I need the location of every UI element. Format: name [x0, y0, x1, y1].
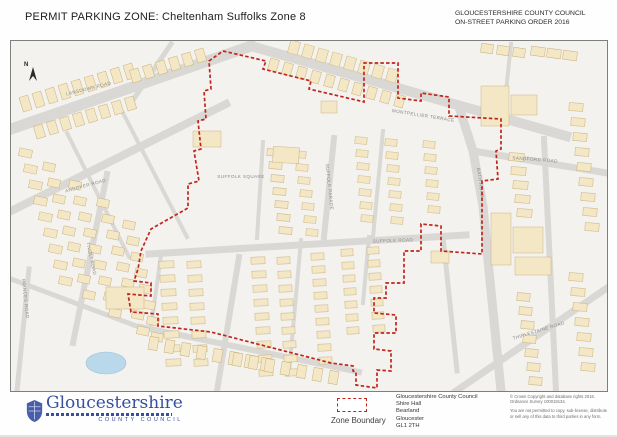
building	[189, 289, 203, 296]
building	[282, 327, 295, 334]
building	[511, 166, 527, 175]
building	[517, 293, 531, 302]
building	[273, 188, 286, 196]
page: PERMIT PARKING ZONE: Cheltenham Suffolks…	[0, 0, 617, 437]
building	[296, 364, 307, 378]
building	[358, 176, 370, 184]
building	[546, 48, 561, 59]
building	[519, 307, 533, 316]
pond	[86, 352, 126, 374]
building	[386, 152, 398, 160]
building	[296, 164, 308, 172]
building	[425, 167, 437, 175]
order-title-line2: ON-STREET PARKING ORDER 2016	[455, 19, 605, 28]
building	[577, 333, 592, 342]
building	[513, 227, 543, 253]
building	[190, 303, 204, 310]
building	[312, 266, 325, 273]
building	[321, 101, 337, 113]
building	[277, 257, 290, 264]
council-address: Gloucestershire County Council Shire Hal…	[396, 394, 478, 430]
building	[163, 317, 178, 325]
building	[515, 194, 531, 203]
building	[277, 214, 290, 222]
building	[573, 133, 588, 142]
building	[573, 303, 588, 312]
building	[256, 327, 270, 334]
building	[317, 331, 330, 338]
copyright-block: © Crown Copyright and database rights 20…	[510, 394, 610, 423]
copyright-text: © Crown Copyright and database rights 20…	[510, 394, 610, 404]
building	[159, 261, 174, 269]
building	[166, 359, 181, 367]
building	[391, 217, 403, 225]
building	[356, 150, 368, 158]
building	[341, 249, 353, 256]
building	[577, 163, 592, 172]
building	[361, 215, 373, 223]
building	[106, 287, 144, 309]
council-logo-name: Gloucestershire	[46, 395, 183, 412]
building	[427, 193, 439, 201]
building	[313, 279, 326, 286]
building	[480, 43, 493, 54]
building	[316, 318, 329, 325]
building	[345, 301, 357, 308]
building	[387, 165, 399, 173]
legend: Zone Boundary	[337, 398, 386, 425]
building	[423, 141, 435, 149]
building	[162, 303, 177, 311]
building	[284, 355, 297, 362]
building	[511, 95, 537, 115]
building	[315, 305, 328, 312]
building	[300, 190, 312, 198]
building	[491, 213, 511, 265]
building	[160, 275, 175, 283]
building	[517, 208, 533, 217]
building	[343, 275, 355, 282]
address-line: Gloucestershire County Council	[396, 394, 478, 401]
building	[275, 201, 288, 209]
building	[581, 193, 596, 202]
building	[579, 348, 594, 357]
building	[371, 299, 383, 306]
building	[428, 206, 440, 214]
building	[279, 285, 292, 292]
council-logo-text: Gloucestershire COUNTY COUNCIL	[46, 395, 183, 423]
council-logo-subtitle: COUNTY COUNCIL	[46, 417, 183, 423]
building	[251, 257, 265, 264]
building	[342, 262, 354, 269]
building	[281, 313, 294, 320]
building	[328, 370, 339, 384]
street-label: SUFFOLK SQUARE	[217, 174, 264, 179]
building	[530, 46, 545, 57]
building	[248, 355, 259, 369]
building	[585, 223, 600, 232]
building	[370, 286, 382, 293]
address-line: GL1 2TH	[396, 423, 478, 430]
building	[579, 178, 594, 187]
building	[164, 339, 175, 353]
building	[347, 327, 359, 334]
council-crest-icon	[26, 398, 43, 424]
building	[529, 377, 543, 386]
address-line: Gloucester	[396, 416, 478, 423]
building	[431, 251, 449, 263]
building	[312, 367, 323, 381]
building	[346, 314, 358, 321]
building	[368, 260, 380, 267]
building	[569, 273, 584, 282]
building	[525, 349, 539, 358]
building	[581, 363, 596, 372]
building	[575, 318, 590, 327]
building	[191, 317, 205, 324]
building	[359, 189, 371, 197]
building	[355, 137, 367, 145]
building	[569, 103, 584, 112]
building	[318, 344, 331, 351]
building	[148, 336, 159, 350]
building	[188, 275, 202, 282]
council-logo: Gloucestershire COUNTY COUNCIL	[26, 395, 183, 424]
building	[164, 331, 179, 339]
building	[311, 253, 324, 260]
building	[527, 363, 541, 372]
building	[280, 299, 293, 306]
building	[424, 154, 436, 162]
building	[212, 348, 223, 362]
page-title: PERMIT PARKING ZONE: Cheltenham Suffolks…	[25, 11, 306, 23]
building	[161, 289, 176, 297]
building	[385, 139, 397, 147]
building	[571, 288, 586, 297]
building	[283, 341, 296, 348]
building	[304, 216, 316, 224]
building	[314, 292, 327, 299]
building	[562, 50, 577, 61]
building	[515, 257, 551, 275]
building	[273, 146, 300, 163]
building	[298, 177, 310, 185]
order-title-line1: GLOUCESTERSHIRE COUNTY COUNCIL	[455, 10, 605, 19]
building	[232, 352, 243, 366]
logo-dashes-decoration	[46, 413, 172, 416]
building	[512, 47, 525, 58]
building	[302, 203, 314, 211]
building	[521, 321, 535, 330]
building	[254, 299, 268, 306]
building	[344, 288, 356, 295]
building	[252, 271, 266, 278]
address-line: Shire Hall	[396, 401, 478, 408]
building	[271, 175, 284, 183]
address-line: Bearland	[396, 408, 478, 415]
building	[278, 271, 291, 278]
building	[180, 342, 191, 356]
building	[187, 261, 201, 268]
building	[367, 247, 379, 254]
zone-boundary-label: Zone Boundary	[331, 416, 386, 425]
building	[481, 86, 509, 126]
building	[194, 359, 208, 366]
building	[255, 313, 269, 320]
building	[357, 163, 369, 171]
building	[306, 229, 318, 237]
building	[575, 148, 590, 157]
building	[426, 180, 438, 188]
building	[253, 285, 267, 292]
building	[571, 118, 586, 127]
disclaimer-text: You are not permitted to copy, sub-licen…	[510, 408, 610, 418]
building	[369, 273, 381, 280]
building	[360, 202, 372, 210]
building	[496, 45, 509, 56]
zone-boundary-swatch	[337, 398, 367, 412]
building	[583, 208, 598, 217]
building	[388, 178, 400, 186]
building	[390, 204, 402, 212]
building	[513, 180, 529, 189]
building	[193, 131, 221, 147]
building	[279, 227, 292, 235]
order-title: GLOUCESTERSHIRE COUNTY COUNCIL ON-STREET…	[455, 10, 605, 27]
building	[264, 358, 275, 372]
building	[389, 191, 401, 199]
north-label: N	[24, 62, 28, 68]
building	[373, 325, 385, 332]
map-canvas: LANSDOWN ROADMONTPELLIER TERRACESANDFORD…	[11, 41, 607, 391]
building	[280, 361, 291, 375]
building	[196, 345, 207, 359]
map: LANSDOWN ROADMONTPELLIER TERRACESANDFORD…	[10, 40, 608, 392]
